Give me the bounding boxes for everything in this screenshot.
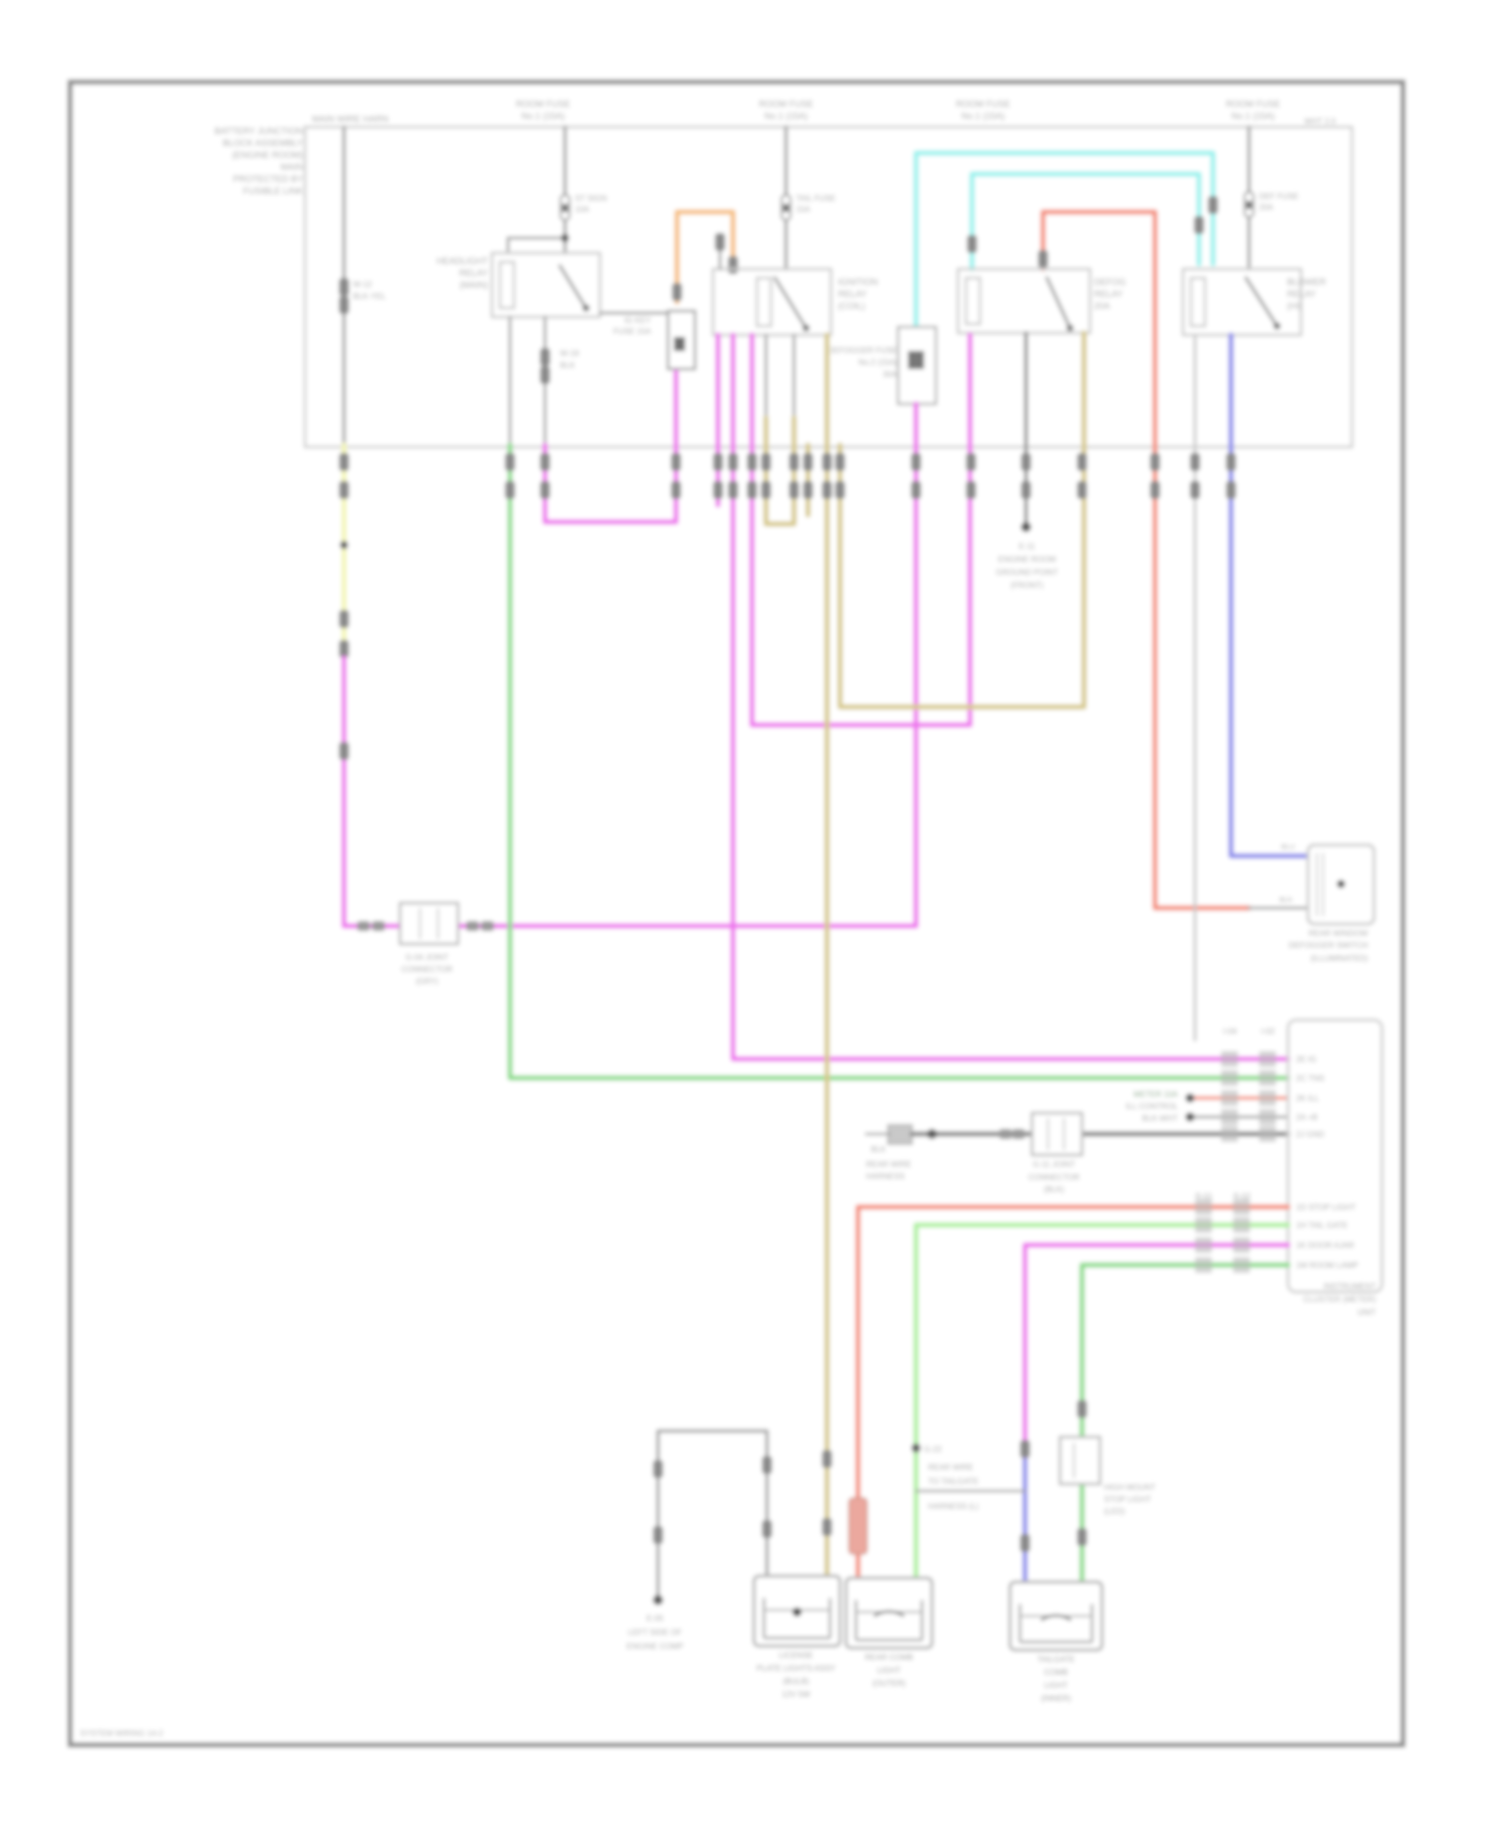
svg-text:(LED): (LED) [1104, 1507, 1125, 1516]
svg-text:1K DOOR AJAR: 1K DOOR AJAR [1296, 1241, 1354, 1250]
svg-text:BLU: BLU [1281, 844, 1295, 851]
svg-text:12V 5W: 12V 5W [782, 1690, 811, 1699]
svg-text:ENGINE ROOM: ENGINE ROOM [998, 555, 1056, 564]
svg-text:BLOWER: BLOWER [1287, 277, 1327, 287]
svg-text:30A: 30A [883, 370, 898, 379]
svg-text:BLK: BLK [871, 1145, 887, 1154]
svg-text:LEFT SIDE OF: LEFT SIDE OF [628, 1628, 682, 1637]
svg-text:MAIN: MAIN [281, 162, 304, 172]
svg-text:(ILLUMINATED): (ILLUMINATED) [1310, 954, 1368, 963]
svg-text:GROUND POINT: GROUND POINT [996, 568, 1058, 577]
svg-text:LICENSE: LICENSE [779, 1651, 813, 1660]
svg-text:REAR WIRE: REAR WIRE [866, 1160, 911, 1169]
svg-text:ROOM FUSE: ROOM FUSE [516, 99, 571, 109]
svg-text:(GRY): (GRY) [416, 977, 439, 986]
svg-text:UNIT: UNIT [1357, 1308, 1376, 1317]
svg-text:RELAY: RELAY [459, 268, 488, 278]
svg-text:WHT 2.0: WHT 2.0 [1304, 117, 1336, 126]
svg-text:HARNESS (L): HARNESS (L) [928, 1502, 979, 1511]
svg-text:DEFOGGER FUSE: DEFOGGER FUSE [828, 346, 897, 355]
svg-text:RELAY: RELAY [1094, 289, 1123, 299]
svg-text:BATTERY JUNCTION: BATTERY JUNCTION [214, 126, 303, 136]
svg-text:LIGHT: LIGHT [877, 1666, 901, 1675]
svg-text:W-19: W-19 [560, 349, 580, 358]
svg-text:TAIL FUSE: TAIL FUSE [796, 194, 836, 203]
svg-text:(ENGINE ROOM): (ENGINE ROOM) [232, 150, 303, 160]
svg-text:REAR WIRE: REAR WIRE [928, 1463, 973, 1472]
svg-text:TO TAILGATE: TO TAILGATE [928, 1477, 979, 1486]
svg-text:STOP LIGHT: STOP LIGHT [1104, 1495, 1151, 1504]
svg-text:(FRONT): (FRONT) [1011, 581, 1044, 590]
svg-text:ROOM FUSE: ROOM FUSE [1226, 99, 1281, 109]
svg-text:G-22: G-22 [924, 1445, 942, 1454]
svg-text:PROTECTED BY: PROTECTED BY [233, 174, 303, 184]
svg-text:15A: 15A [796, 205, 811, 214]
svg-text:20A: 20A [1094, 301, 1110, 311]
svg-text:BLK: BLK [560, 361, 576, 370]
svg-text:(BULB): (BULB) [783, 1677, 810, 1686]
svg-text:HARNESS: HARNESS [866, 1172, 905, 1181]
svg-text:G-11 JOINT: G-11 JOINT [1033, 1160, 1076, 1169]
svg-text:R-01: R-01 [1195, 1192, 1213, 1201]
svg-text:REAR COMB: REAR COMB [865, 1653, 913, 1662]
svg-text:CONNECTOR: CONNECTOR [1028, 1173, 1080, 1182]
svg-text:2A +B: 2A +B [1296, 1113, 1318, 1122]
svg-text:2E IG: 2E IG [1296, 1055, 1316, 1064]
svg-text:PLATE LIGHTS ASSY: PLATE LIGHTS ASSY [757, 1664, 837, 1673]
svg-text:CONNECTOR: CONNECTOR [401, 965, 453, 974]
svg-text:No.1 (15A): No.1 (15A) [764, 111, 808, 121]
svg-text:CLUSTER (METER): CLUSTER (METER) [1303, 1295, 1376, 1304]
svg-text:20A: 20A [1259, 203, 1274, 212]
svg-text:(HI): (HI) [1287, 301, 1302, 311]
svg-text:INSTRUMENT: INSTRUMENT [1324, 1282, 1377, 1291]
svg-text:1M ROOM LAMP: 1M ROOM LAMP [1296, 1261, 1358, 1270]
svg-text:BLOCK ASSEMBLY: BLOCK ASSEMBLY [223, 138, 303, 148]
svg-text:I-02: I-02 [1261, 1027, 1275, 1036]
svg-text:BLK-WHT: BLK-WHT [1142, 1114, 1178, 1123]
svg-text:DEF FUSE: DEF FUSE [1259, 192, 1299, 201]
svg-text:2J GND: 2J GND [1296, 1130, 1325, 1139]
svg-text:(MAIN): (MAIN) [460, 280, 489, 290]
svg-text:No.1 (15A): No.1 (15A) [1231, 111, 1275, 121]
svg-text:No.1 (15A): No.1 (15A) [521, 111, 565, 121]
svg-text:I-04: I-04 [1223, 1027, 1237, 1036]
svg-text:1D STOP LIGHT: 1D STOP LIGHT [1296, 1203, 1356, 1212]
svg-text:ILL CONTROL: ILL CONTROL [1126, 1102, 1179, 1111]
svg-text:No.1 (15A): No.1 (15A) [961, 111, 1005, 121]
svg-text:W-12: W-12 [353, 280, 373, 289]
svg-text:2K ILL: 2K ILL [1296, 1094, 1320, 1103]
svg-text:TAILGATE: TAILGATE [1037, 1655, 1075, 1664]
svg-text:10A: 10A [575, 205, 590, 214]
svg-text:ROOM FUSE: ROOM FUSE [956, 99, 1011, 109]
svg-text:DEFOGGER SWITCH: DEFOGGER SWITCH [1288, 941, 1368, 950]
svg-text:RELAY: RELAY [1287, 289, 1316, 299]
svg-text:BLK: BLK [1279, 897, 1293, 904]
svg-text:1H TAIL GATE: 1H TAIL GATE [1296, 1221, 1348, 1230]
svg-text:SYSTEM WIRING 14-2: SYSTEM WIRING 14-2 [80, 1729, 164, 1738]
svg-text:ROOM FUSE: ROOM FUSE [759, 99, 814, 109]
svg-text:ENGINE COMP: ENGINE COMP [627, 1642, 684, 1651]
svg-text:ST SIGN: ST SIGN [575, 194, 607, 203]
svg-text:FUSIBLE LINK: FUSIBLE LINK [243, 186, 303, 196]
svg-text:(BLK): (BLK) [1044, 1185, 1065, 1194]
svg-text:MAIN WIRE HARN: MAIN WIRE HARN [312, 114, 389, 124]
svg-text:(INNER): (INNER) [1041, 1694, 1072, 1703]
svg-text:RELAY: RELAY [838, 289, 867, 299]
svg-text:(COIL): (COIL) [838, 301, 865, 311]
svg-text:R-02: R-02 [1233, 1192, 1251, 1201]
svg-text:HEADLIGHT: HEADLIGHT [436, 256, 488, 266]
svg-text:FUSE 15A: FUSE 15A [613, 327, 651, 336]
svg-text:REAR WINDOW: REAR WINDOW [1308, 929, 1368, 938]
svg-text:E-05: E-05 [647, 1614, 664, 1623]
svg-text:(OUTER): (OUTER) [872, 1679, 906, 1688]
svg-text:BLK-YEL: BLK-YEL [353, 292, 386, 301]
svg-text:METER 10A: METER 10A [1134, 1090, 1179, 1099]
svg-text:DEFOG: DEFOG [1094, 277, 1126, 287]
svg-text:IG KEY: IG KEY [624, 316, 651, 325]
svg-text:IGNITION: IGNITION [838, 277, 878, 287]
svg-text:2C TNS: 2C TNS [1296, 1074, 1324, 1083]
svg-text:E-11: E-11 [1019, 542, 1036, 551]
svg-text:G-04 JOINT: G-04 JOINT [405, 953, 448, 962]
svg-text:No.2 (15A): No.2 (15A) [858, 358, 897, 367]
svg-text:HIGH MOUNT: HIGH MOUNT [1104, 1483, 1156, 1492]
svg-text:COMB: COMB [1044, 1668, 1068, 1677]
svg-text:LIGHT: LIGHT [1044, 1681, 1068, 1690]
